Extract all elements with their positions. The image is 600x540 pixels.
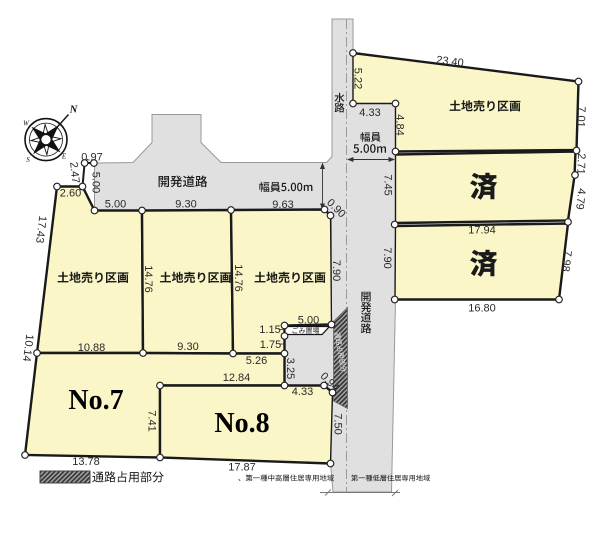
svg-text:9.30: 9.30 — [175, 198, 196, 210]
svg-text:5.22: 5.22 — [352, 68, 364, 89]
svg-text:13.78: 13.78 — [72, 456, 100, 468]
svg-text:9.63: 9.63 — [272, 199, 293, 211]
svg-text:No.7: No.7 — [68, 385, 123, 416]
svg-text:4.79: 4.79 — [573, 188, 587, 211]
svg-text:7.90: 7.90 — [330, 260, 342, 281]
svg-text:12.84: 12.84 — [223, 372, 251, 384]
svg-text:4.84: 4.84 — [394, 114, 406, 135]
svg-text:1.15: 1.15 — [259, 324, 280, 336]
svg-text:7.41: 7.41 — [146, 410, 158, 431]
svg-text:N: N — [69, 105, 78, 116]
svg-text:4.33: 4.33 — [359, 107, 380, 119]
svg-text:17.87: 17.87 — [228, 461, 256, 473]
svg-text:7.01: 7.01 — [574, 106, 587, 128]
svg-text:E: E — [61, 153, 67, 161]
svg-text:9.30: 9.30 — [177, 341, 198, 353]
svg-text:S: S — [26, 156, 30, 164]
svg-text:5.00: 5.00 — [90, 172, 102, 193]
svg-text:14.76: 14.76 — [232, 264, 244, 292]
svg-text:7.50: 7.50 — [332, 413, 344, 434]
svg-text:7.90: 7.90 — [381, 247, 393, 268]
svg-text:1.75: 1.75 — [260, 339, 281, 351]
svg-text:7.45: 7.45 — [382, 174, 394, 195]
svg-text:5.26: 5.26 — [246, 355, 267, 367]
svg-text:No.8: No.8 — [214, 408, 269, 439]
svg-text:2.47: 2.47 — [67, 161, 81, 184]
svg-text:5.00: 5.00 — [298, 314, 319, 326]
svg-text:10.88: 10.88 — [78, 342, 106, 354]
svg-text:3.25: 3.25 — [284, 358, 296, 379]
svg-text:14.76: 14.76 — [142, 265, 154, 293]
svg-text:16.80: 16.80 — [468, 302, 496, 314]
svg-text:2.60: 2.60 — [60, 187, 81, 199]
svg-text:4.33: 4.33 — [292, 386, 313, 398]
svg-text:17.94: 17.94 — [468, 224, 496, 236]
svg-text:5.00: 5.00 — [105, 198, 126, 210]
